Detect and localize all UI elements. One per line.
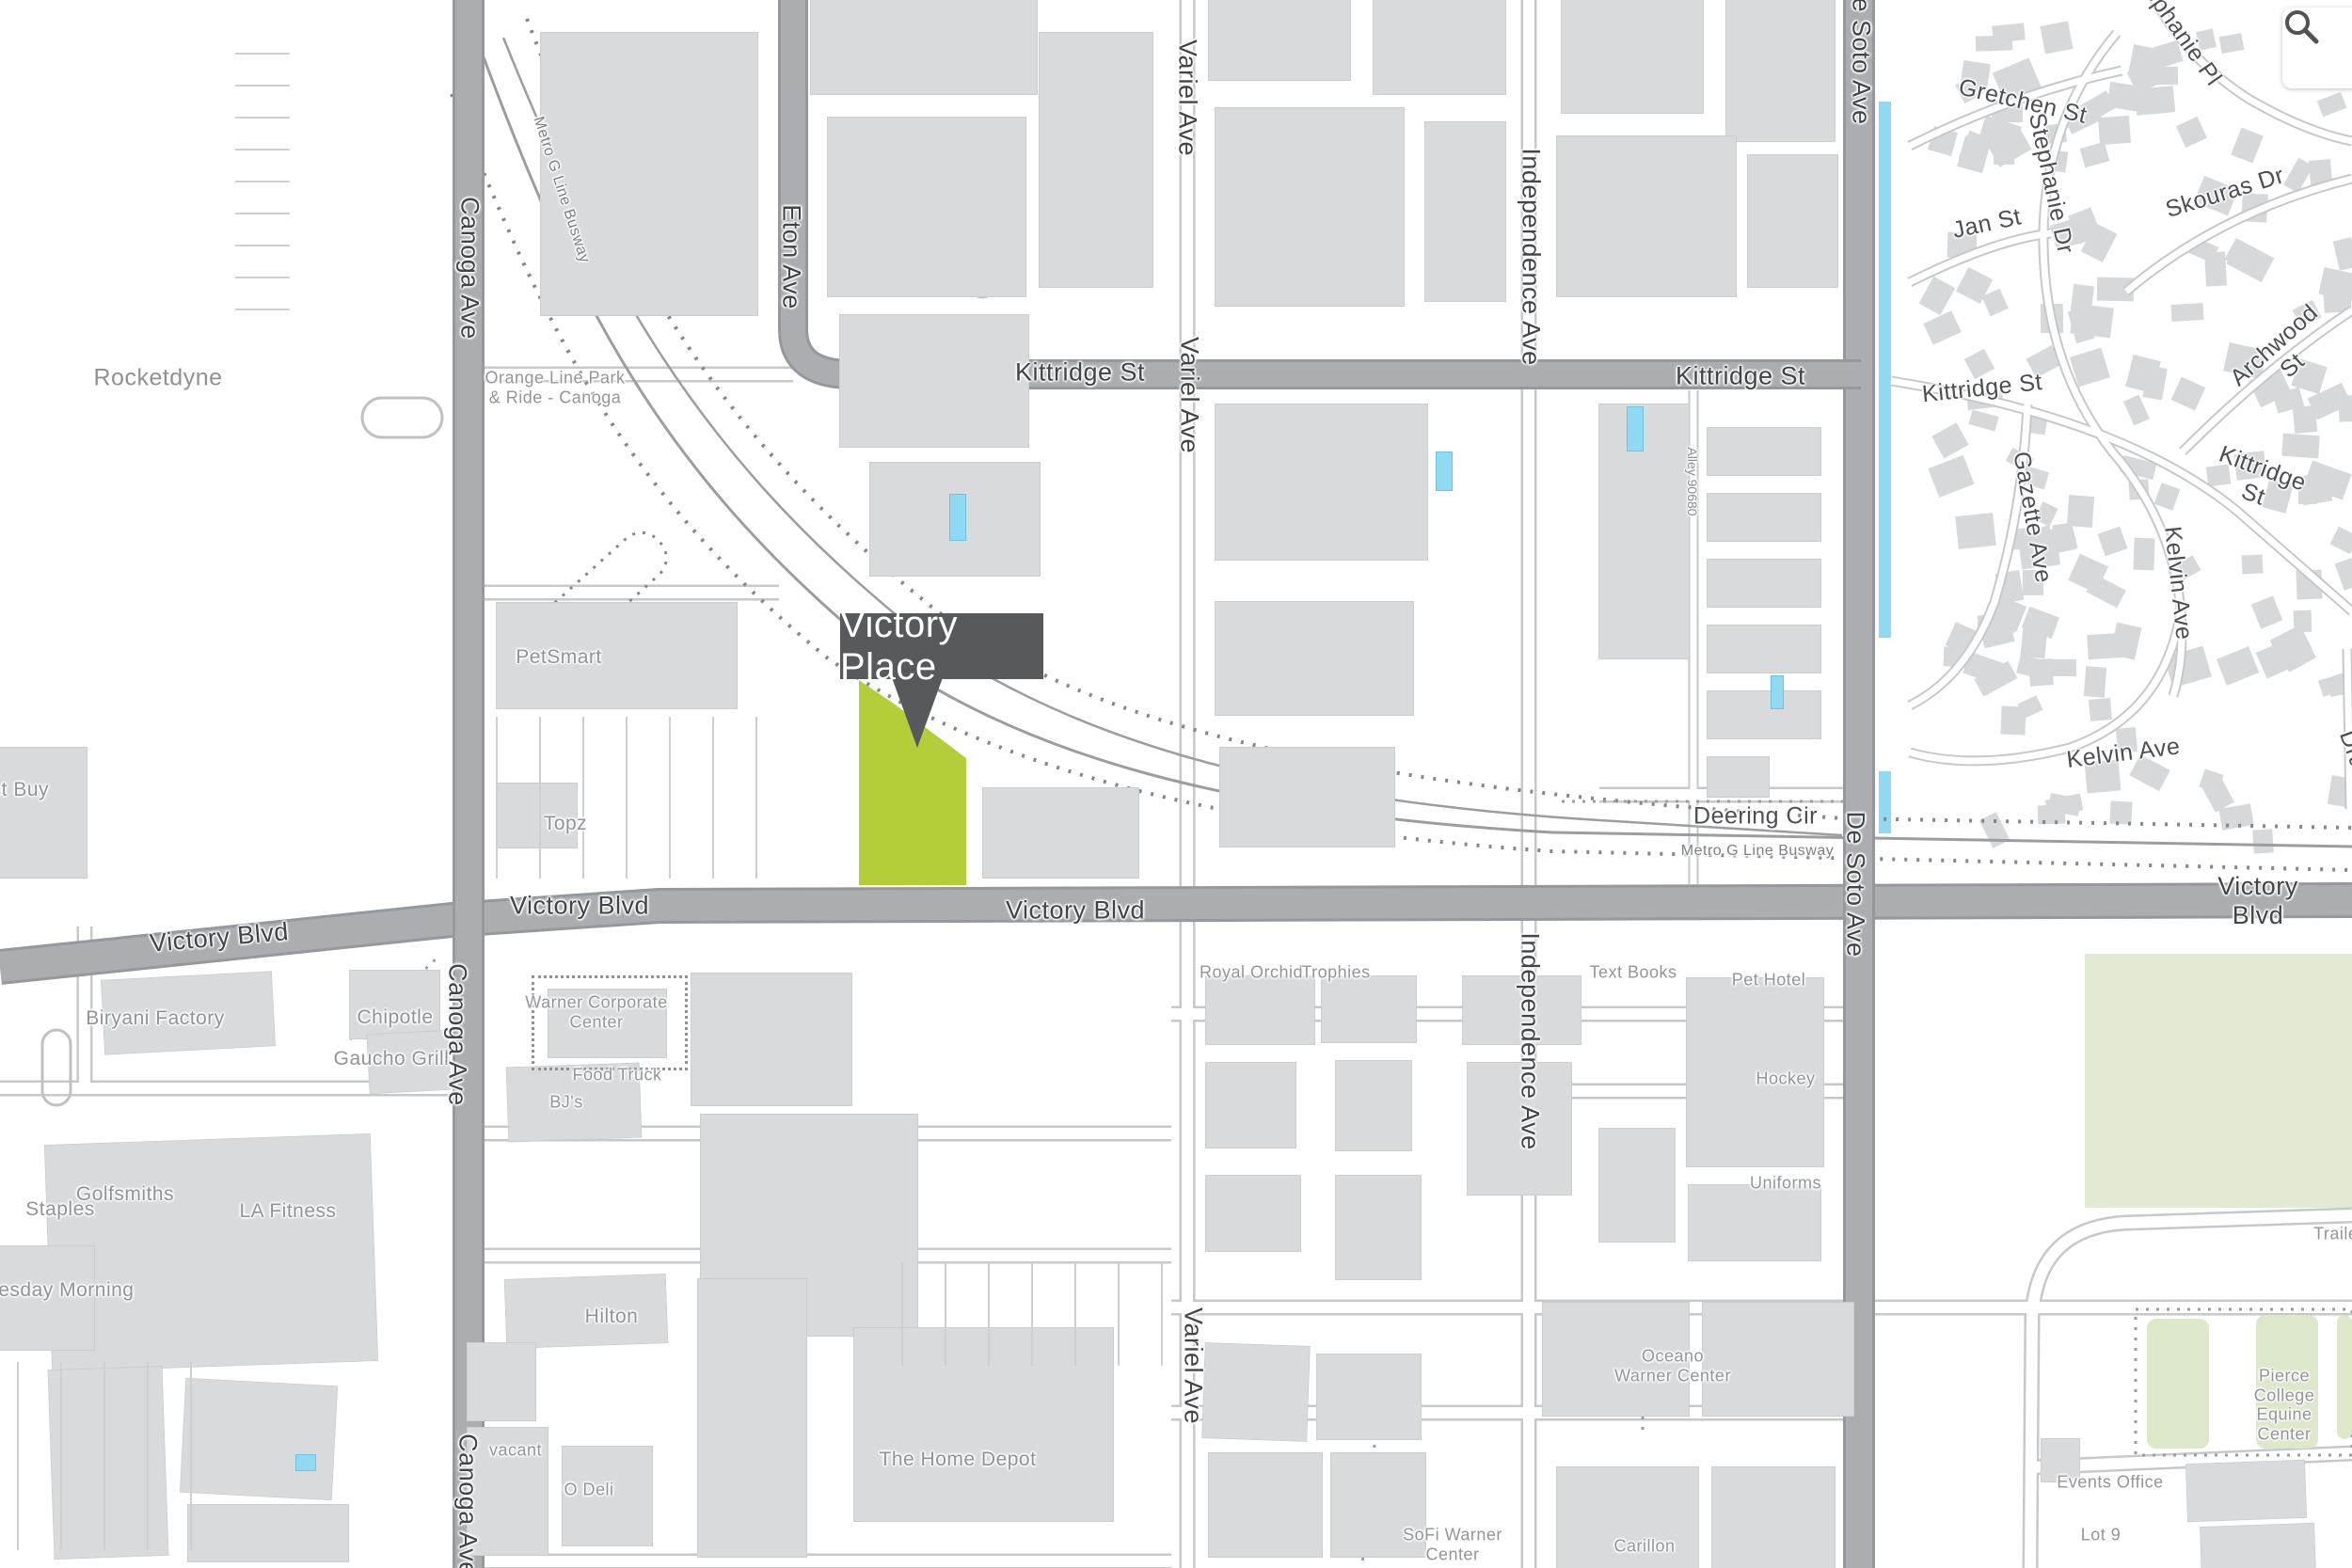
label-kittridge-st: Kittridge St bbox=[2204, 440, 2312, 523]
label-gazette-ave: Gazette Ave bbox=[2008, 450, 2058, 585]
label-vacant: vacant bbox=[489, 1441, 542, 1461]
label-variel-ave: Variel Ave bbox=[1174, 337, 1203, 453]
label-the-home-depot: The Home Depot bbox=[880, 1449, 1037, 1471]
label-jan-st: Jan St bbox=[1950, 203, 2024, 244]
label-events-office: Events Office bbox=[2057, 1473, 2163, 1493]
label-topz: Topz bbox=[544, 813, 587, 835]
label-variel-ave: Variel Ave bbox=[1172, 40, 1201, 156]
label-kelvin-ave: Kelvin Ave bbox=[2065, 733, 2182, 773]
label-kittridge-st: Kittridge St bbox=[1676, 361, 1805, 390]
label-orange-line-park-ride-canoga: Orange Line Park & Ride - Canoga bbox=[485, 368, 625, 406]
label-trailer: Trailer bbox=[2313, 1225, 2352, 1244]
map-canvas[interactable]: RocketdyneCanoga AveCanoga AveCanoga Ave… bbox=[0, 0, 2352, 1568]
search-button[interactable] bbox=[2282, 8, 2352, 88]
labels-layer: RocketdyneCanoga AveCanoga AveCanoga Ave… bbox=[0, 0, 2352, 1568]
search-icon bbox=[2282, 8, 2320, 45]
label-uniforms: Uniforms bbox=[1750, 1174, 1821, 1194]
label-de-soto-ave: De Soto Ave bbox=[1846, 0, 1875, 125]
label-independence-ave: Independence Ave bbox=[1515, 932, 1544, 1149]
label-stephanie-pl: Stephanie Pl bbox=[2125, 0, 2227, 91]
label-canoga-ave: Canoga Ave bbox=[454, 197, 484, 340]
label-tuesday-morning: Tuesday Morning bbox=[0, 1279, 134, 1302]
label-victory-blvd: Victory Blvd bbox=[2211, 872, 2305, 930]
label-royal-orchid: Royal Orchid bbox=[1200, 963, 1303, 983]
label-deering-cir: Deering Cir bbox=[1693, 803, 1818, 831]
label-gaucho-grill: Gaucho Grill bbox=[334, 1048, 450, 1070]
label-independence-ave: Independence Ave bbox=[1516, 148, 1545, 365]
label-pierce-college-equine-center: Pierce College Equine Center bbox=[2250, 1367, 2318, 1445]
label-food-truck: Food Truck bbox=[572, 1066, 661, 1085]
label-de-soto-ave: De Soto Ave bbox=[1840, 811, 1869, 957]
label-carillon: Carillon bbox=[1613, 1537, 1675, 1557]
label-skouras-dr: Skouras Dr bbox=[2163, 162, 2288, 224]
label-best-buy: Best Buy bbox=[0, 779, 49, 801]
label-golfsmiths: Golfsmiths bbox=[76, 1183, 174, 1206]
label-hockey: Hockey bbox=[1756, 1069, 1815, 1089]
label-kittridge-st: Kittridge St bbox=[1921, 369, 2044, 408]
label-trophies: Trophies bbox=[1301, 963, 1370, 983]
label-metro-g-line-busway: Metro G Line Busway bbox=[1681, 843, 1834, 860]
label-victory-blvd: Victory Blvd bbox=[510, 891, 649, 920]
label-la-fitness: LA Fitness bbox=[239, 1200, 336, 1223]
label-stephanie-dr: Stephanie Dr bbox=[2023, 111, 2079, 257]
label-o-deli: O Deli bbox=[564, 1481, 613, 1500]
label-kittridge-st: Kittridge St bbox=[1015, 357, 1145, 387]
label-lot-9: Lot 9 bbox=[2081, 1526, 2122, 1545]
label-sofi-warner-center: SoFi Warner Center bbox=[1403, 1525, 1502, 1563]
label-dral: Dral bbox=[2333, 727, 2352, 779]
label-warner-corporate-center: Warner Corporate Center bbox=[525, 992, 667, 1031]
label-biryani-factory: Biryani Factory bbox=[86, 1007, 225, 1030]
label-metro-g-line-busway: Metro G Line Busway bbox=[529, 115, 593, 265]
label-variel-ave: Variel Ave bbox=[1178, 1307, 1207, 1424]
label-archwood-st: Archwood St bbox=[2225, 299, 2342, 412]
label-gretchen-st: Gretchen St bbox=[1956, 73, 2090, 129]
label-chipotle: Chipotle bbox=[357, 1006, 433, 1029]
label-hilton: Hilton bbox=[585, 1306, 639, 1328]
label-victory-blvd: Victory Blvd bbox=[1006, 895, 1145, 925]
label-oceano-warner-center: Oceano Warner Center bbox=[1614, 1346, 1731, 1385]
label-bj-s: BJ's bbox=[549, 1093, 582, 1113]
label-kelvin-ave: Kelvin Ave bbox=[2158, 525, 2197, 641]
label-canoga-ave: Canoga Ave bbox=[453, 1433, 482, 1568]
label-rocketdyne: Rocketdyne bbox=[93, 365, 222, 392]
label-victory-blvd: Victory Blvd bbox=[149, 917, 290, 958]
label-pet-hotel: Pet Hotel bbox=[1732, 971, 1806, 990]
label-text-books: Text Books bbox=[1589, 963, 1677, 983]
label-eton-ave: Eton Ave bbox=[776, 204, 805, 309]
label-canoga-ave: Canoga Ave bbox=[442, 963, 471, 1106]
label-petsmart: PetSmart bbox=[516, 646, 602, 669]
label-alley-90680: Alley 90680 bbox=[1685, 447, 1700, 515]
